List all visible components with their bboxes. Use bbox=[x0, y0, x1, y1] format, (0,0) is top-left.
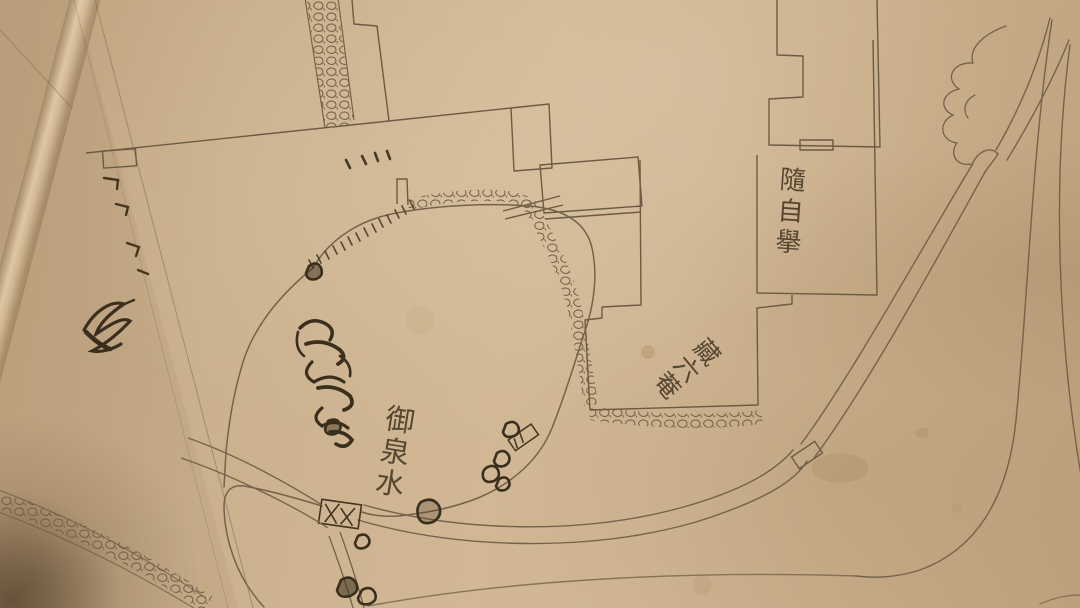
building-mid-small bbox=[511, 104, 552, 171]
paper-corner-line bbox=[0, 30, 72, 108]
building-mid-wide bbox=[540, 157, 642, 213]
building-upper-right-a bbox=[769, 0, 880, 147]
outer-road-curve bbox=[368, 20, 1080, 606]
map-drawing bbox=[0, 0, 1080, 608]
cobblestone-path-bottom-left bbox=[0, 489, 208, 608]
shoreline-hatching bbox=[309, 201, 414, 268]
map-photo: 御泉水 藏六菴 隨自擧 bbox=[0, 0, 1080, 608]
dot-tick-marks bbox=[346, 151, 390, 168]
road-hook bbox=[972, 150, 998, 172]
tree-foliage-scallops bbox=[943, 26, 1006, 164]
building-top-center bbox=[352, 0, 389, 121]
cobblestone-path-top bbox=[305, 0, 354, 128]
garden-road-double-line bbox=[358, 18, 1069, 544]
cursive-brush-mark bbox=[84, 300, 134, 352]
cobblestone-shore-chain bbox=[408, 195, 533, 205]
fold-structure-marks bbox=[104, 178, 148, 274]
upper-building-label: 隨自擧 bbox=[767, 165, 810, 260]
pond-lower-lobe bbox=[224, 486, 322, 607]
pond-jetty bbox=[397, 179, 408, 205]
fold-crease-lines bbox=[74, 0, 253, 608]
gate-rectangle bbox=[102, 149, 136, 168]
pond-west-shore bbox=[224, 268, 313, 487]
bottom-boundary-line bbox=[368, 575, 856, 606]
boundary-line bbox=[86, 108, 511, 153]
plank-bridge-x-hatched bbox=[319, 499, 362, 528]
cobblestone-edging-hermitage bbox=[528, 202, 762, 421]
